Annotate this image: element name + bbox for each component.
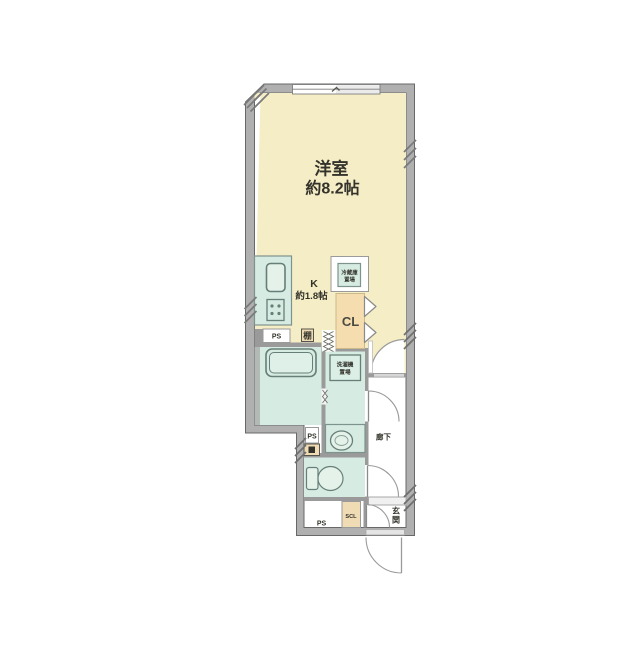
svg-text:K: K bbox=[310, 278, 318, 290]
svg-text:関: 関 bbox=[392, 515, 400, 525]
svg-text:廊下: 廊下 bbox=[376, 432, 391, 442]
svg-text:冷蔵庫: 冷蔵庫 bbox=[341, 269, 358, 277]
svg-text:PS: PS bbox=[272, 334, 282, 341]
svg-text:洋室: 洋室 bbox=[315, 159, 349, 179]
svg-text:洗濯機: 洗濯機 bbox=[337, 360, 354, 368]
svg-text:棚: 棚 bbox=[303, 331, 312, 341]
svg-text:SCL: SCL bbox=[345, 514, 357, 520]
svg-text:玄: 玄 bbox=[392, 506, 400, 516]
svg-text:PS: PS bbox=[317, 521, 327, 528]
svg-text:CL: CL bbox=[342, 314, 359, 329]
svg-text:置場: 置場 bbox=[339, 368, 351, 376]
svg-text:置場: 置場 bbox=[344, 276, 355, 284]
svg-text:約1.8帖: 約1.8帖 bbox=[295, 290, 328, 302]
svg-text:PS: PS bbox=[307, 434, 317, 441]
svg-text:約8.2帖: 約8.2帖 bbox=[305, 179, 359, 198]
